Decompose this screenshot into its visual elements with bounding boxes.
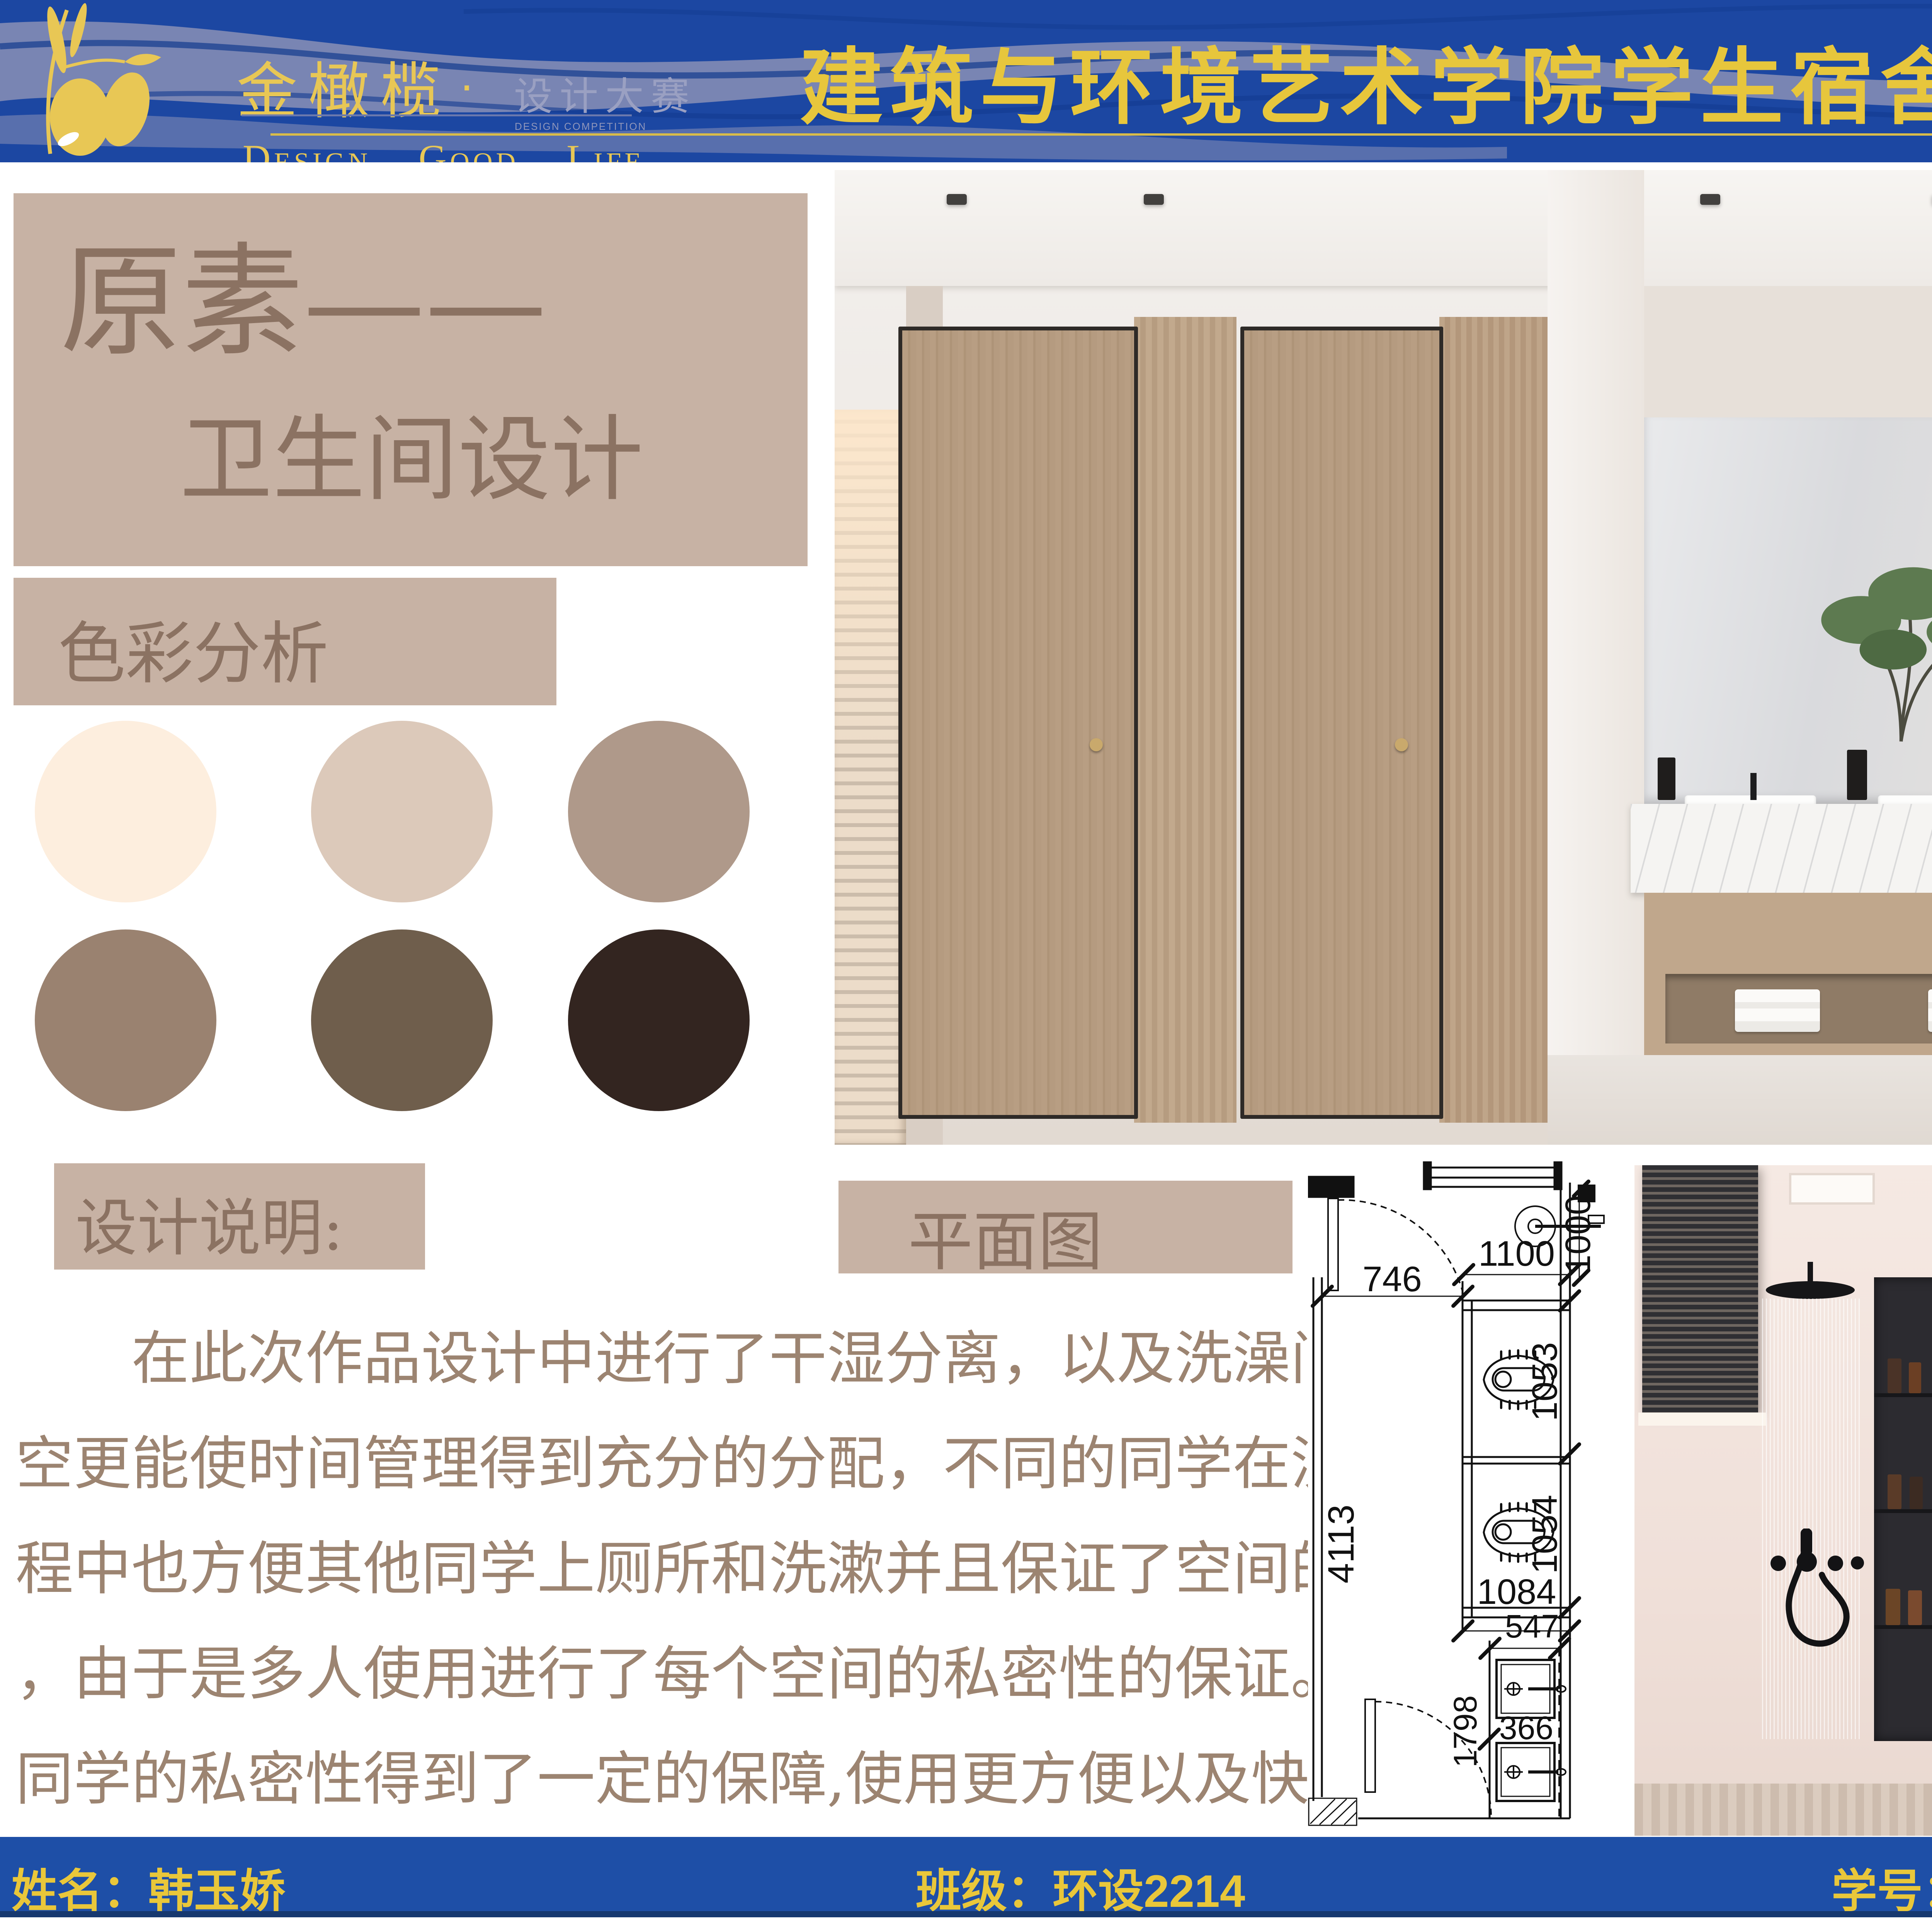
render-toilet-stalls-photo <box>835 170 1932 1145</box>
header-band: 金橄榄 · 设计大赛 DESIGN COMPETITION Design. Go… <box>0 0 1932 162</box>
palette-swatch-1 <box>35 721 216 902</box>
dim-wash-depth: 1798 <box>1447 1695 1483 1768</box>
shelf <box>1874 1509 1932 1513</box>
ceiling-vent <box>1789 1173 1875 1205</box>
stall-door-right <box>1240 327 1443 1119</box>
shampoo-bottle <box>1888 1474 1901 1509</box>
poster-title-block: 原素—— 卫生间设计 <box>14 193 808 566</box>
ceiling <box>835 170 1932 286</box>
vanity-mirror <box>1644 417 1932 804</box>
palette-swatch-5 <box>311 929 493 1111</box>
brand-underline <box>241 114 632 116</box>
poster-title-line2: 卫生间设计 <box>180 385 643 519</box>
tagline-word-good: Good. <box>418 137 532 162</box>
render-shower-photo <box>1634 1165 1932 1836</box>
shampoo-bottle <box>1908 1590 1922 1625</box>
shelf <box>1874 1625 1932 1629</box>
brand-separator-dot: · <box>459 58 474 111</box>
water-spray <box>1762 1299 1862 1739</box>
palette-swatch-4 <box>35 929 216 1111</box>
shelf <box>1874 1393 1932 1397</box>
brand-program-english: DESIGN COMPETITION <box>515 121 631 133</box>
description-line: 程中也方便其他同学上厕所和洗漱并且保证了空间的独立性 <box>15 1517 1306 1622</box>
rain-shower-head <box>1766 1281 1855 1299</box>
wood-partition <box>1439 317 1548 1123</box>
floor-plan-label: 平面图 <box>908 1189 1103 1283</box>
floor-plan-drawing: 746 1100 1000 1053 1054 1084 547 1798 36… <box>1308 1161 1617 1834</box>
faucet <box>1750 773 1757 800</box>
footer-name: 姓名：韩玉娇 <box>12 1854 285 1920</box>
soap-bottle <box>1847 750 1867 800</box>
footer-band: 姓名：韩玉娇 班级：环设2214 学号：202240397 <box>0 1837 1932 1917</box>
tagline-word-design: Design. <box>243 137 384 162</box>
dim-stall1-depth: 1053 <box>1525 1342 1565 1421</box>
shampoo-bottle <box>1910 1477 1923 1509</box>
dim-stall-bottom: 1084 <box>1477 1572 1556 1612</box>
door-knob <box>1395 738 1408 751</box>
wall-pillar <box>1548 170 1644 1145</box>
golden-olive-logo-icon <box>21 3 199 159</box>
palette-swatch-2 <box>311 721 493 902</box>
color-analysis-label: 色彩分析 <box>58 599 328 697</box>
towel-stack <box>1735 989 1820 1032</box>
tile-floor <box>1634 1784 1932 1836</box>
soap-bottle <box>1658 757 1675 800</box>
towel-stack <box>1928 989 1932 1032</box>
dim-basin-width: 366 <box>1499 1710 1553 1746</box>
brand-program: 设计大赛 <box>514 65 696 121</box>
dim-wash-width: 547 <box>1505 1608 1559 1644</box>
brand-name: 金橄榄 <box>236 42 452 130</box>
footer-student-id: 学号：202240397 <box>1832 1854 1932 1920</box>
design-competition-poster: 金橄榄 · 设计大赛 DESIGN COMPETITION Design. Go… <box>0 0 1932 1917</box>
shampoo-bottle <box>1909 1362 1921 1393</box>
wood-partition <box>1134 317 1236 1123</box>
description-line: 同学的私密性得到了一定的保障,使用更方便以及快捷。 <box>15 1727 1306 1832</box>
design-notes-label: 设计说明: <box>75 1178 344 1268</box>
floor-plan-svg: 746 1100 1000 1053 1054 1084 547 1798 36… <box>1308 1161 1617 1834</box>
window-glow <box>835 410 906 757</box>
black-blinds <box>1642 1165 1758 1413</box>
description-line: ，由于是多人使用进行了每个空间的私密性的保证。让每位 <box>15 1622 1306 1727</box>
brand-tagline: Design. Good. Life <box>243 136 645 162</box>
hand-shower-hose <box>1770 1529 1870 1668</box>
footer-class: 班级：环设2214 <box>916 1854 1245 1920</box>
color-analysis-label-block: 色彩分析 <box>14 578 556 705</box>
floor <box>1548 1055 1932 1145</box>
ceiling-light <box>1700 194 1720 205</box>
dim-corridor: 746 <box>1362 1260 1422 1299</box>
ceiling-light <box>1144 194 1164 205</box>
palette-swatch-6 <box>568 929 750 1111</box>
dim-left-total: 4113 <box>1321 1505 1362 1583</box>
footer-bottom-edge <box>0 1911 1932 1917</box>
poster-title-line1: 原素—— <box>60 203 547 379</box>
threshold-hatch <box>1309 1798 1357 1825</box>
door-knob <box>1090 738 1103 751</box>
tagline-word-life: Life <box>566 137 645 162</box>
window-sill <box>1638 1413 1766 1426</box>
shampoo-bottle <box>1888 1358 1901 1393</box>
stall-door-left <box>898 327 1138 1119</box>
dim-stall-width: 1100 <box>1478 1234 1555 1273</box>
design-notes-label-block: 设计说明: <box>54 1163 425 1270</box>
description-line: 在此次作品设计中进行了干湿分离，以及洗澡间的独立 <box>15 1306 1306 1411</box>
description-line: 空更能使时间管理得到充分的分配，不同的同学在洗澡的过 <box>15 1411 1306 1517</box>
design-description: 在此次作品设计中进行了干湿分离，以及洗澡间的独立 空更能使时间管理得到充分的分配… <box>15 1306 1306 1832</box>
dim-stall2-depth: 1054 <box>1525 1495 1565 1574</box>
palette-swatch-3 <box>568 721 750 902</box>
floor-plan-label-block: 平面图 <box>838 1181 1293 1273</box>
dim-basin-offset: 1000 <box>1558 1195 1598 1275</box>
ceiling-light <box>947 194 967 205</box>
marble-counter <box>1631 804 1932 893</box>
competition-title: 建筑与环境艺术学院学生宿舍卫生间设计大赛 <box>800 20 1932 140</box>
shampoo-bottle <box>1886 1589 1900 1625</box>
